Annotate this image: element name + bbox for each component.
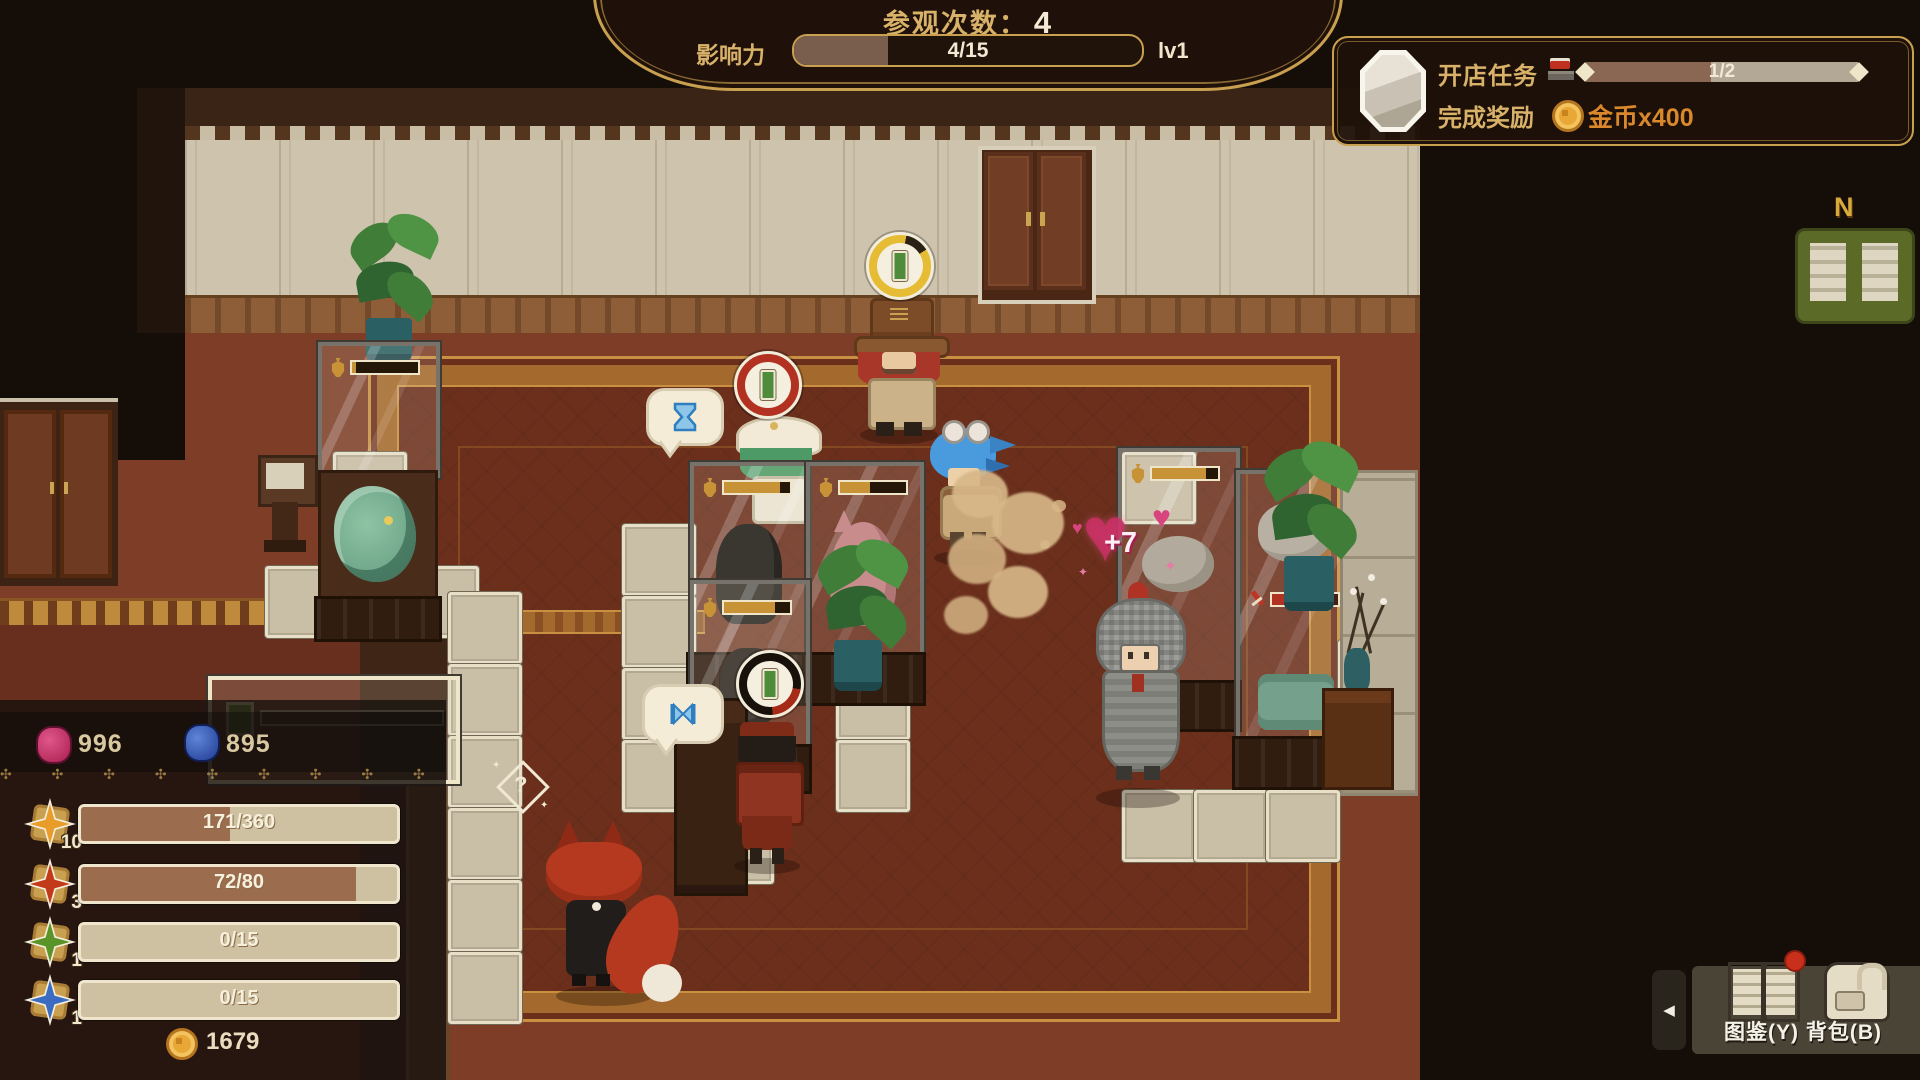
reputation-bar-text: 171/360 — [81, 811, 397, 834]
quest-progress-bar: 1/2 — [1586, 62, 1858, 82]
patience-bar-icon — [761, 370, 776, 400]
amphora-icon — [1130, 464, 1146, 483]
influence-label: 影响力 — [696, 36, 765, 70]
side-table — [1322, 688, 1394, 790]
collapse-arrow-icon: ◀ — [1663, 1001, 1675, 1019]
quest-title: 开店任务 — [1438, 56, 1538, 91]
dragon-eye — [384, 516, 393, 525]
wardrobe-door — [4, 410, 56, 578]
quest-progress-text: 1/2 — [1586, 61, 1858, 83]
reputation-star-blue-icon: 1 — [22, 974, 78, 1026]
hat-emblem — [890, 308, 908, 320]
floor-tile — [836, 740, 910, 812]
wardrobe[interactable] — [0, 398, 118, 586]
register-icon — [1548, 58, 1574, 82]
reputation-bar-text: 0/15 — [81, 929, 397, 952]
reputation-bar-yellow: 171/360 — [78, 804, 400, 844]
reputation-bar-text: 0/15 — [81, 987, 397, 1010]
pink-gem-icon — [36, 726, 72, 764]
coins-value: 1679 — [206, 1028, 259, 1056]
amphora-icon — [702, 598, 718, 617]
speech-bubble-hourglass — [646, 388, 724, 446]
blue-gem-icon — [184, 724, 220, 762]
floor-tile — [622, 524, 696, 596]
guidebook-icon[interactable] — [1795, 228, 1915, 324]
game-stage: ♥ ♥ ♥ ✦ ✦ +7 ? ✦ ✦ 参观次数：4 影响力 4/15 lv1 开… — [0, 0, 1920, 1080]
amphora-icon — [702, 478, 718, 497]
floor-tile — [448, 880, 522, 952]
affection-value: +7 — [1104, 527, 1137, 560]
patience-ring-yellow — [866, 232, 934, 300]
influence-progress-bar: 4/15 — [792, 34, 1144, 67]
catalog-label[interactable]: 图鉴(Y) — [1724, 1021, 1799, 1044]
floor-tile — [448, 952, 522, 1024]
quest-panel[interactable]: 开店任务 1/2 完成奖励 金币x400 — [1332, 36, 1914, 146]
coin-icon — [1552, 100, 1584, 132]
reputation-star-green-icon: 1 — [22, 916, 78, 968]
dragon-head-artifact — [334, 486, 416, 582]
quest-stone-icon — [1360, 50, 1426, 132]
reputation-bar-blue: 0/15 — [78, 980, 400, 1020]
wardrobe-handle-icon — [50, 482, 54, 494]
npc-fox-suit[interactable] — [538, 818, 688, 1014]
wall-scallop-trim — [185, 126, 1420, 140]
notification-dot — [1784, 950, 1806, 972]
bag-label[interactable]: 背包(B) — [1806, 1021, 1882, 1044]
reward-value: 金币x400 — [1588, 98, 1694, 134]
reputation-bar-red: 72/80 — [78, 864, 400, 904]
ornament-row: ✣ ✣ ✣ ✣ ✣ ✣ ✣ ✣ ✣ ✣ ✣ ✣ ✣ — [0, 766, 446, 783]
sword-icon — [1248, 590, 1266, 608]
wardrobe-handle-icon — [64, 482, 68, 494]
question-hint: ? ✦ ✦ — [492, 756, 552, 816]
artifact-progress-bar — [702, 478, 792, 497]
door-handle-icon — [1040, 212, 1045, 226]
stats-panel: 996 895 ✣ ✣ ✣ ✣ ✣ ✣ ✣ ✣ ✣ ✣ ✣ ✣ ✣ 10 171… — [0, 700, 446, 1080]
hourglass-icon — [672, 402, 698, 432]
goggles-icon — [966, 420, 990, 444]
coin-icon — [166, 1028, 198, 1060]
reputation-star-yellow-icon: 10 — [22, 798, 78, 850]
trade-bowtie-icon — [668, 701, 698, 727]
artifact-progress-bar — [330, 358, 420, 377]
artifact-progress-bar — [702, 598, 792, 617]
double-door[interactable] — [978, 146, 1096, 304]
artifact-progress-bar — [1130, 464, 1220, 483]
reputation-bar-text: 72/80 — [81, 871, 397, 894]
toolbar-collapse-button[interactable]: ◀ — [1652, 970, 1686, 1050]
catalog-button[interactable] — [1728, 958, 1794, 1014]
floor-tile — [448, 592, 522, 664]
artifact-progress-bar — [818, 478, 908, 497]
pink-gem-value: 996 — [78, 730, 123, 759]
patience-ring-dark — [736, 650, 804, 718]
door-handle-icon — [1026, 212, 1031, 226]
top-status-banner: 参观次数：4 影响力 4/15 lv1 — [593, 0, 1343, 91]
patience-bar-icon — [893, 251, 908, 281]
compass-north-label: N — [1834, 192, 1854, 223]
influence-level: lv1 — [1158, 38, 1189, 64]
reputation-star-red-icon: 3 — [22, 858, 78, 910]
speech-bubble-trade — [642, 684, 724, 744]
wardrobe-door — [60, 410, 112, 578]
affection-popup: ♥ ♥ ♥ ✦ ✦ +7 — [1076, 505, 1196, 600]
influence-progress-text: 4/15 — [794, 39, 1142, 63]
question-mark: ? — [514, 772, 527, 798]
hat-gem — [770, 422, 778, 430]
wall-left-edge — [137, 88, 185, 333]
reputation-bar-green: 0/15 — [78, 922, 400, 962]
floor-tile — [622, 596, 696, 668]
patience-bar-icon — [763, 669, 778, 699]
npc-knight-visitor[interactable] — [1086, 582, 1190, 812]
amphora-icon — [818, 478, 834, 497]
horse-ear — [834, 510, 854, 532]
floor-tile — [1194, 790, 1268, 862]
toolbar-labels: 图鉴(Y) 背包(B) — [1692, 1016, 1914, 1046]
floor-tile — [448, 808, 522, 880]
floor-tile — [1266, 790, 1340, 862]
blue-gem-value: 895 — [226, 730, 271, 759]
reward-label: 完成奖励 — [1438, 98, 1534, 133]
bottom-toolbar: 图鉴(Y) 背包(B) — [1692, 966, 1920, 1054]
patience-ring-red — [734, 351, 802, 419]
amphora-icon — [330, 358, 346, 377]
npc-bellhop-staff[interactable] — [730, 722, 804, 878]
bag-button[interactable] — [1824, 962, 1890, 1022]
goggles-icon — [942, 420, 966, 444]
